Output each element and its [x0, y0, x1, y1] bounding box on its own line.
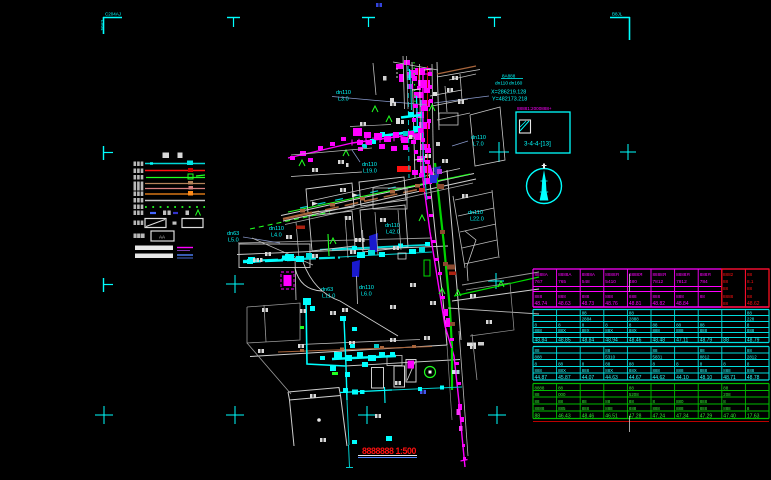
svg-text:888: 888: [723, 406, 731, 411]
svg-text:48.85: 48.85: [558, 338, 571, 344]
svg-text:dn110: dn110: [495, 81, 508, 87]
svg-text:88: 88: [558, 399, 563, 404]
svg-text:784: 784: [700, 279, 708, 285]
svg-text:dn63: dn63: [227, 231, 239, 237]
svg-text:888: 888: [653, 328, 661, 333]
svg-text:44.63: 44.63: [605, 375, 618, 381]
svg-text:8A888: 8A888: [502, 74, 516, 79]
svg-text:88: 88: [535, 399, 540, 404]
svg-text:dn110: dn110: [269, 226, 284, 232]
svg-text:48.46: 48.46: [582, 414, 595, 420]
svg-text:8888: 8888: [535, 386, 545, 391]
svg-text:888: 888: [629, 406, 637, 411]
svg-text:dn110: dn110: [471, 135, 486, 141]
svg-text:8.1: 8.1: [747, 279, 754, 284]
svg-text:L42.0: L42.0: [386, 230, 400, 236]
svg-text:8882: 8882: [723, 272, 734, 277]
svg-text:L19.0: L19.0: [363, 169, 377, 175]
svg-text:888: 888: [653, 368, 661, 373]
svg-text:48.84: 48.84: [535, 338, 548, 344]
svg-text:48.84: 48.84: [676, 301, 689, 307]
svg-text:88: 88: [629, 362, 634, 367]
svg-text:B8JL: B8JL: [612, 12, 623, 17]
svg-text:5310: 5310: [605, 355, 615, 360]
svg-text:888: 888: [558, 294, 566, 299]
svg-text:44.07: 44.07: [582, 375, 595, 381]
svg-text:888: 888: [700, 406, 708, 411]
svg-text:88X: 88X: [558, 328, 566, 333]
svg-text:88X: 88X: [605, 328, 613, 333]
svg-text:88: 88: [747, 272, 753, 277]
svg-text:88: 88: [723, 301, 729, 306]
svg-text:48.71: 48.71: [723, 375, 736, 381]
svg-text:88: 88: [605, 399, 610, 404]
svg-text:88: 88: [582, 399, 587, 404]
svg-text:46.51: 46.51: [605, 414, 618, 420]
svg-text:8888Я: 8888Я: [676, 272, 690, 277]
svg-text:Y=482173.218: Y=482173.218: [492, 97, 527, 103]
svg-text:LX04: LX04: [100, 20, 105, 31]
svg-text:48.79: 48.79: [747, 338, 760, 344]
svg-text:88: 88: [723, 338, 729, 344]
svg-text:888: 888: [582, 368, 590, 373]
svg-text:47.34: 47.34: [676, 414, 689, 420]
svg-text:888: 888: [582, 406, 590, 411]
svg-text:765: 765: [558, 279, 566, 285]
svg-text:L22.0: L22.0: [470, 217, 484, 223]
svg-text:L7.0: L7.0: [473, 142, 484, 148]
svg-text:44.10: 44.10: [676, 375, 689, 381]
svg-text:88: 88: [700, 348, 705, 353]
svg-text:888: 888: [629, 294, 637, 299]
svg-text:8888A: 8888A: [535, 272, 549, 277]
svg-text:888: 888: [676, 368, 684, 373]
svg-text:88: 88: [747, 294, 753, 299]
svg-text:47.40: 47.40: [723, 414, 736, 420]
svg-text:48.76: 48.76: [605, 301, 618, 307]
svg-text:44.87: 44.87: [535, 375, 548, 381]
svg-text:888: 888: [535, 294, 543, 299]
svg-text:888: 888: [676, 294, 684, 299]
svg-text:767: 767: [535, 279, 543, 285]
svg-text:88: 88: [558, 362, 563, 367]
svg-text:X=286219.128: X=286219.128: [491, 90, 526, 96]
svg-text:dn63: dn63: [321, 287, 333, 293]
svg-text:L6.0: L6.0: [361, 292, 372, 298]
svg-text:88: 88: [535, 414, 541, 420]
svg-text:208: 208: [723, 392, 731, 397]
svg-text:8888Я: 8888Я: [629, 272, 643, 277]
svg-text:888: 888: [582, 294, 590, 299]
svg-text:48.46: 48.46: [629, 338, 642, 344]
svg-text:888: 888: [535, 355, 543, 360]
svg-text:7812: 7812: [653, 279, 664, 285]
svg-text:2812: 2812: [747, 355, 757, 360]
svg-text:888: 888: [653, 406, 661, 411]
svg-text:888: 888: [747, 368, 755, 373]
svg-text:88: 88: [535, 392, 540, 397]
svg-text:888: 888: [700, 328, 708, 333]
svg-text:dn110: dn110: [362, 162, 377, 168]
svg-text:dn110: dn110: [468, 210, 483, 216]
svg-text:88: 88: [700, 323, 705, 328]
svg-text:228: 228: [747, 317, 755, 322]
svg-text:dn110: dn110: [359, 285, 374, 291]
svg-text:888: 888: [747, 328, 755, 333]
svg-text:88: 88: [747, 286, 753, 291]
svg-text:48.84: 48.84: [582, 338, 595, 344]
svg-text:5208: 5208: [629, 392, 639, 397]
svg-text:48.74: 48.74: [535, 301, 548, 307]
svg-text:48.81: 48.81: [629, 301, 642, 307]
svg-text:48.10: 48.10: [700, 375, 713, 381]
svg-text:885: 885: [558, 406, 566, 411]
svg-text:888: 888: [535, 368, 543, 373]
svg-text:44.62: 44.62: [653, 375, 666, 381]
svg-text:48.79: 48.79: [700, 338, 713, 344]
svg-text:dn160: dn160: [509, 81, 523, 87]
svg-text:48.82: 48.82: [653, 301, 666, 307]
svg-text:888: 888: [723, 368, 731, 373]
svg-text:88: 88: [747, 311, 752, 316]
svg-text:48.62: 48.62: [747, 301, 760, 307]
svg-text:888: 888: [535, 328, 543, 333]
svg-text:48.94: 48.94: [605, 338, 618, 344]
svg-text:17.63: 17.63: [747, 414, 760, 420]
svg-text:8888: 8888: [723, 294, 734, 299]
svg-text:2888: 2888: [629, 317, 639, 322]
svg-text:888: 888: [676, 328, 684, 333]
svg-text:48.73: 48.73: [582, 301, 595, 307]
svg-text:AA: AA: [159, 235, 165, 240]
svg-text:47.11: 47.11: [676, 338, 688, 344]
svg-text:5831: 5831: [653, 355, 663, 360]
svg-text:888: 888: [653, 294, 661, 299]
svg-text:47.28: 47.28: [629, 414, 642, 420]
svg-text:88: 88: [653, 348, 658, 353]
svg-text:L5.0: L5.0: [228, 238, 239, 244]
svg-text:48.78: 48.78: [747, 375, 760, 381]
svg-text:480: 480: [629, 279, 637, 285]
svg-text:88: 88: [676, 323, 681, 328]
svg-text:88X: 88X: [629, 368, 637, 373]
svg-text:8888A: 8888A: [582, 272, 596, 277]
svg-text:8888: 8888: [535, 406, 545, 411]
svg-text:2884: 2884: [582, 317, 592, 322]
svg-text:88: 88: [653, 323, 658, 328]
svg-text:88: 88: [605, 348, 610, 353]
svg-text:88: 88: [700, 294, 706, 299]
svg-text:888: 888: [676, 406, 684, 411]
svg-text:88: 88: [723, 386, 728, 391]
svg-text:888Я: 888Я: [700, 272, 711, 277]
svg-text:dn110: dn110: [385, 223, 400, 229]
svg-text:88: 88: [629, 311, 634, 316]
svg-text:88: 88: [629, 386, 634, 391]
svg-text:888: 888: [700, 399, 708, 404]
svg-text:88X: 88X: [629, 328, 637, 333]
svg-text:8812: 8812: [700, 355, 710, 360]
svg-text:44.67: 44.67: [629, 375, 642, 381]
svg-text:88881:2000888+: 88881:2000888+: [517, 106, 552, 111]
svg-text:88X: 88X: [582, 328, 590, 333]
svg-text:48.63: 48.63: [558, 301, 571, 307]
svg-text:3-4-4-[13]: 3-4-4-[13]: [524, 141, 551, 148]
svg-text:88: 88: [723, 286, 729, 291]
svg-text:88X: 88X: [558, 368, 566, 373]
svg-text:88: 88: [629, 399, 634, 404]
svg-text:C204AJ: C204AJ: [105, 12, 121, 17]
svg-text:8888Я: 8888Я: [653, 272, 667, 277]
svg-text:45.87: 45.87: [558, 375, 571, 381]
svg-text:880: 880: [676, 399, 684, 404]
svg-text:88: 88: [723, 279, 729, 284]
svg-text:88: 88: [605, 362, 610, 367]
svg-text:46.43: 46.43: [558, 414, 571, 420]
svg-text:47.24: 47.24: [653, 414, 666, 420]
svg-text:5410: 5410: [605, 279, 616, 285]
svg-text:8888888 1:500: 8888888 1:500: [362, 446, 416, 456]
svg-text:888: 888: [605, 294, 613, 299]
svg-text:8888A: 8888A: [558, 272, 572, 277]
svg-text:548: 548: [582, 279, 590, 285]
svg-text:88: 88: [747, 348, 752, 353]
svg-text:000: 000: [558, 392, 566, 397]
svg-text:48.48: 48.48: [653, 338, 666, 344]
svg-text:88X: 88X: [605, 368, 613, 373]
svg-text:7812: 7812: [676, 279, 687, 285]
svg-text:88: 88: [582, 311, 587, 316]
svg-text:8888Я: 8888Я: [605, 272, 619, 277]
svg-text:88: 88: [558, 386, 563, 391]
svg-text:L4.0: L4.0: [271, 233, 282, 239]
svg-text:888: 888: [605, 406, 613, 411]
svg-text:88: 88: [535, 348, 540, 353]
svg-text:dn110: dn110: [336, 90, 351, 96]
svg-text:888: 888: [700, 368, 708, 373]
svg-text:47.29: 47.29: [700, 414, 713, 420]
